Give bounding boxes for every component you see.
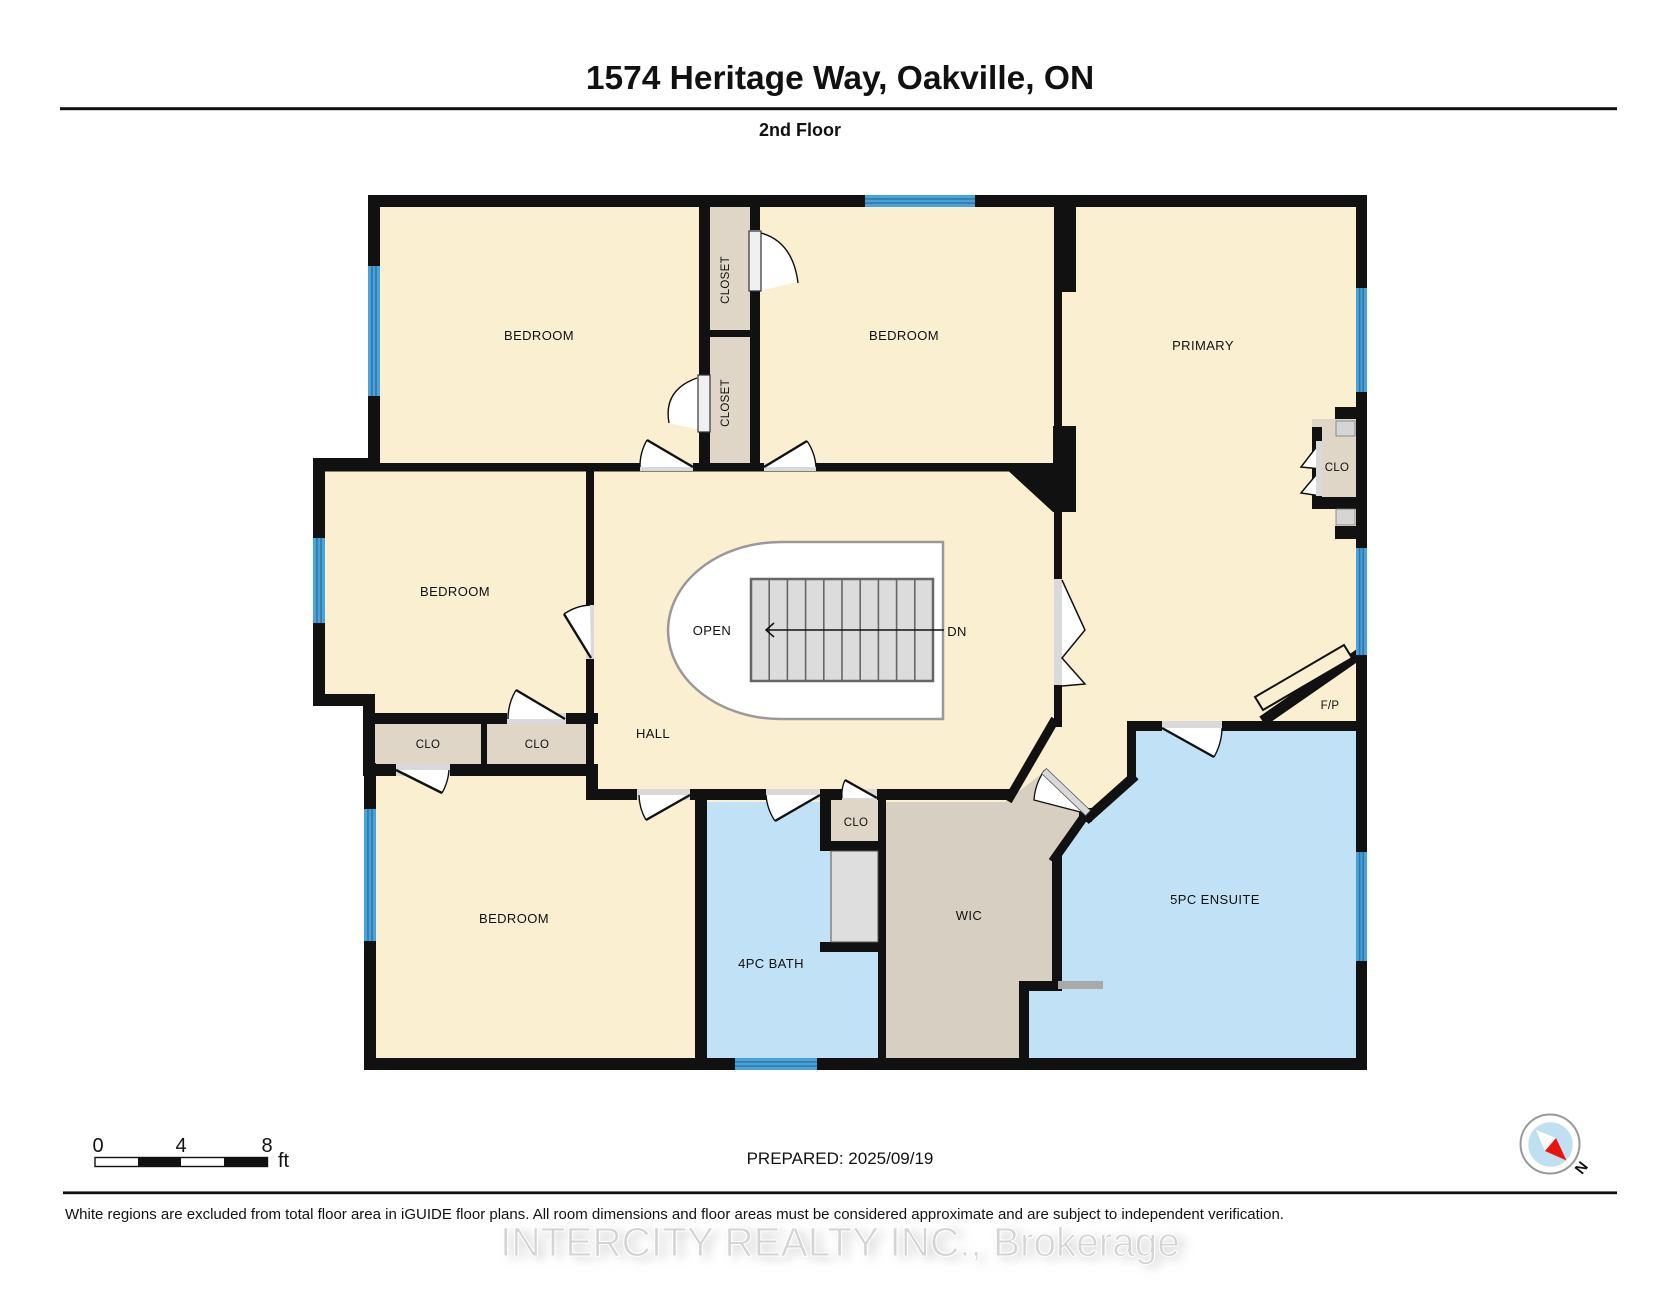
- svg-text:ft: ft: [278, 1150, 290, 1172]
- svg-text:OPEN: OPEN: [693, 623, 731, 638]
- svg-text:BEDROOM: BEDROOM: [420, 584, 490, 599]
- svg-text:4PC BATH: 4PC BATH: [738, 956, 804, 971]
- svg-text:INTERCITY REALTY INC., Brokera: INTERCITY REALTY INC., Brokerage: [500, 1219, 1180, 1265]
- svg-text:PRIMARY: PRIMARY: [1172, 338, 1234, 353]
- svg-text:2nd Floor: 2nd Floor: [759, 120, 841, 140]
- svg-text:BEDROOM: BEDROOM: [869, 328, 939, 343]
- svg-text:8: 8: [261, 1135, 272, 1157]
- svg-text:0: 0: [92, 1135, 103, 1157]
- svg-text:1574 Heritage Way, Oakville, O: 1574 Heritage Way, Oakville, ON: [586, 60, 1094, 97]
- svg-text:CLO: CLO: [1325, 462, 1350, 474]
- svg-text:CLO: CLO: [844, 817, 869, 829]
- svg-text:CLOSET: CLOSET: [720, 256, 732, 304]
- svg-text:WIC: WIC: [956, 908, 982, 923]
- svg-text:4: 4: [175, 1135, 186, 1157]
- svg-text:CLOSET: CLOSET: [720, 379, 732, 427]
- svg-text:BEDROOM: BEDROOM: [479, 911, 549, 926]
- svg-text:5PC ENSUITE: 5PC ENSUITE: [1170, 892, 1260, 907]
- svg-text:DN: DN: [947, 624, 967, 639]
- svg-text:F/P: F/P: [1321, 700, 1340, 712]
- svg-text:CLO: CLO: [416, 739, 441, 751]
- svg-text:HALL: HALL: [636, 726, 670, 741]
- svg-text:BEDROOM: BEDROOM: [504, 328, 574, 343]
- svg-text:PREPARED: 2025/09/19: PREPARED: 2025/09/19: [747, 1149, 934, 1168]
- svg-text:CLO: CLO: [525, 739, 550, 751]
